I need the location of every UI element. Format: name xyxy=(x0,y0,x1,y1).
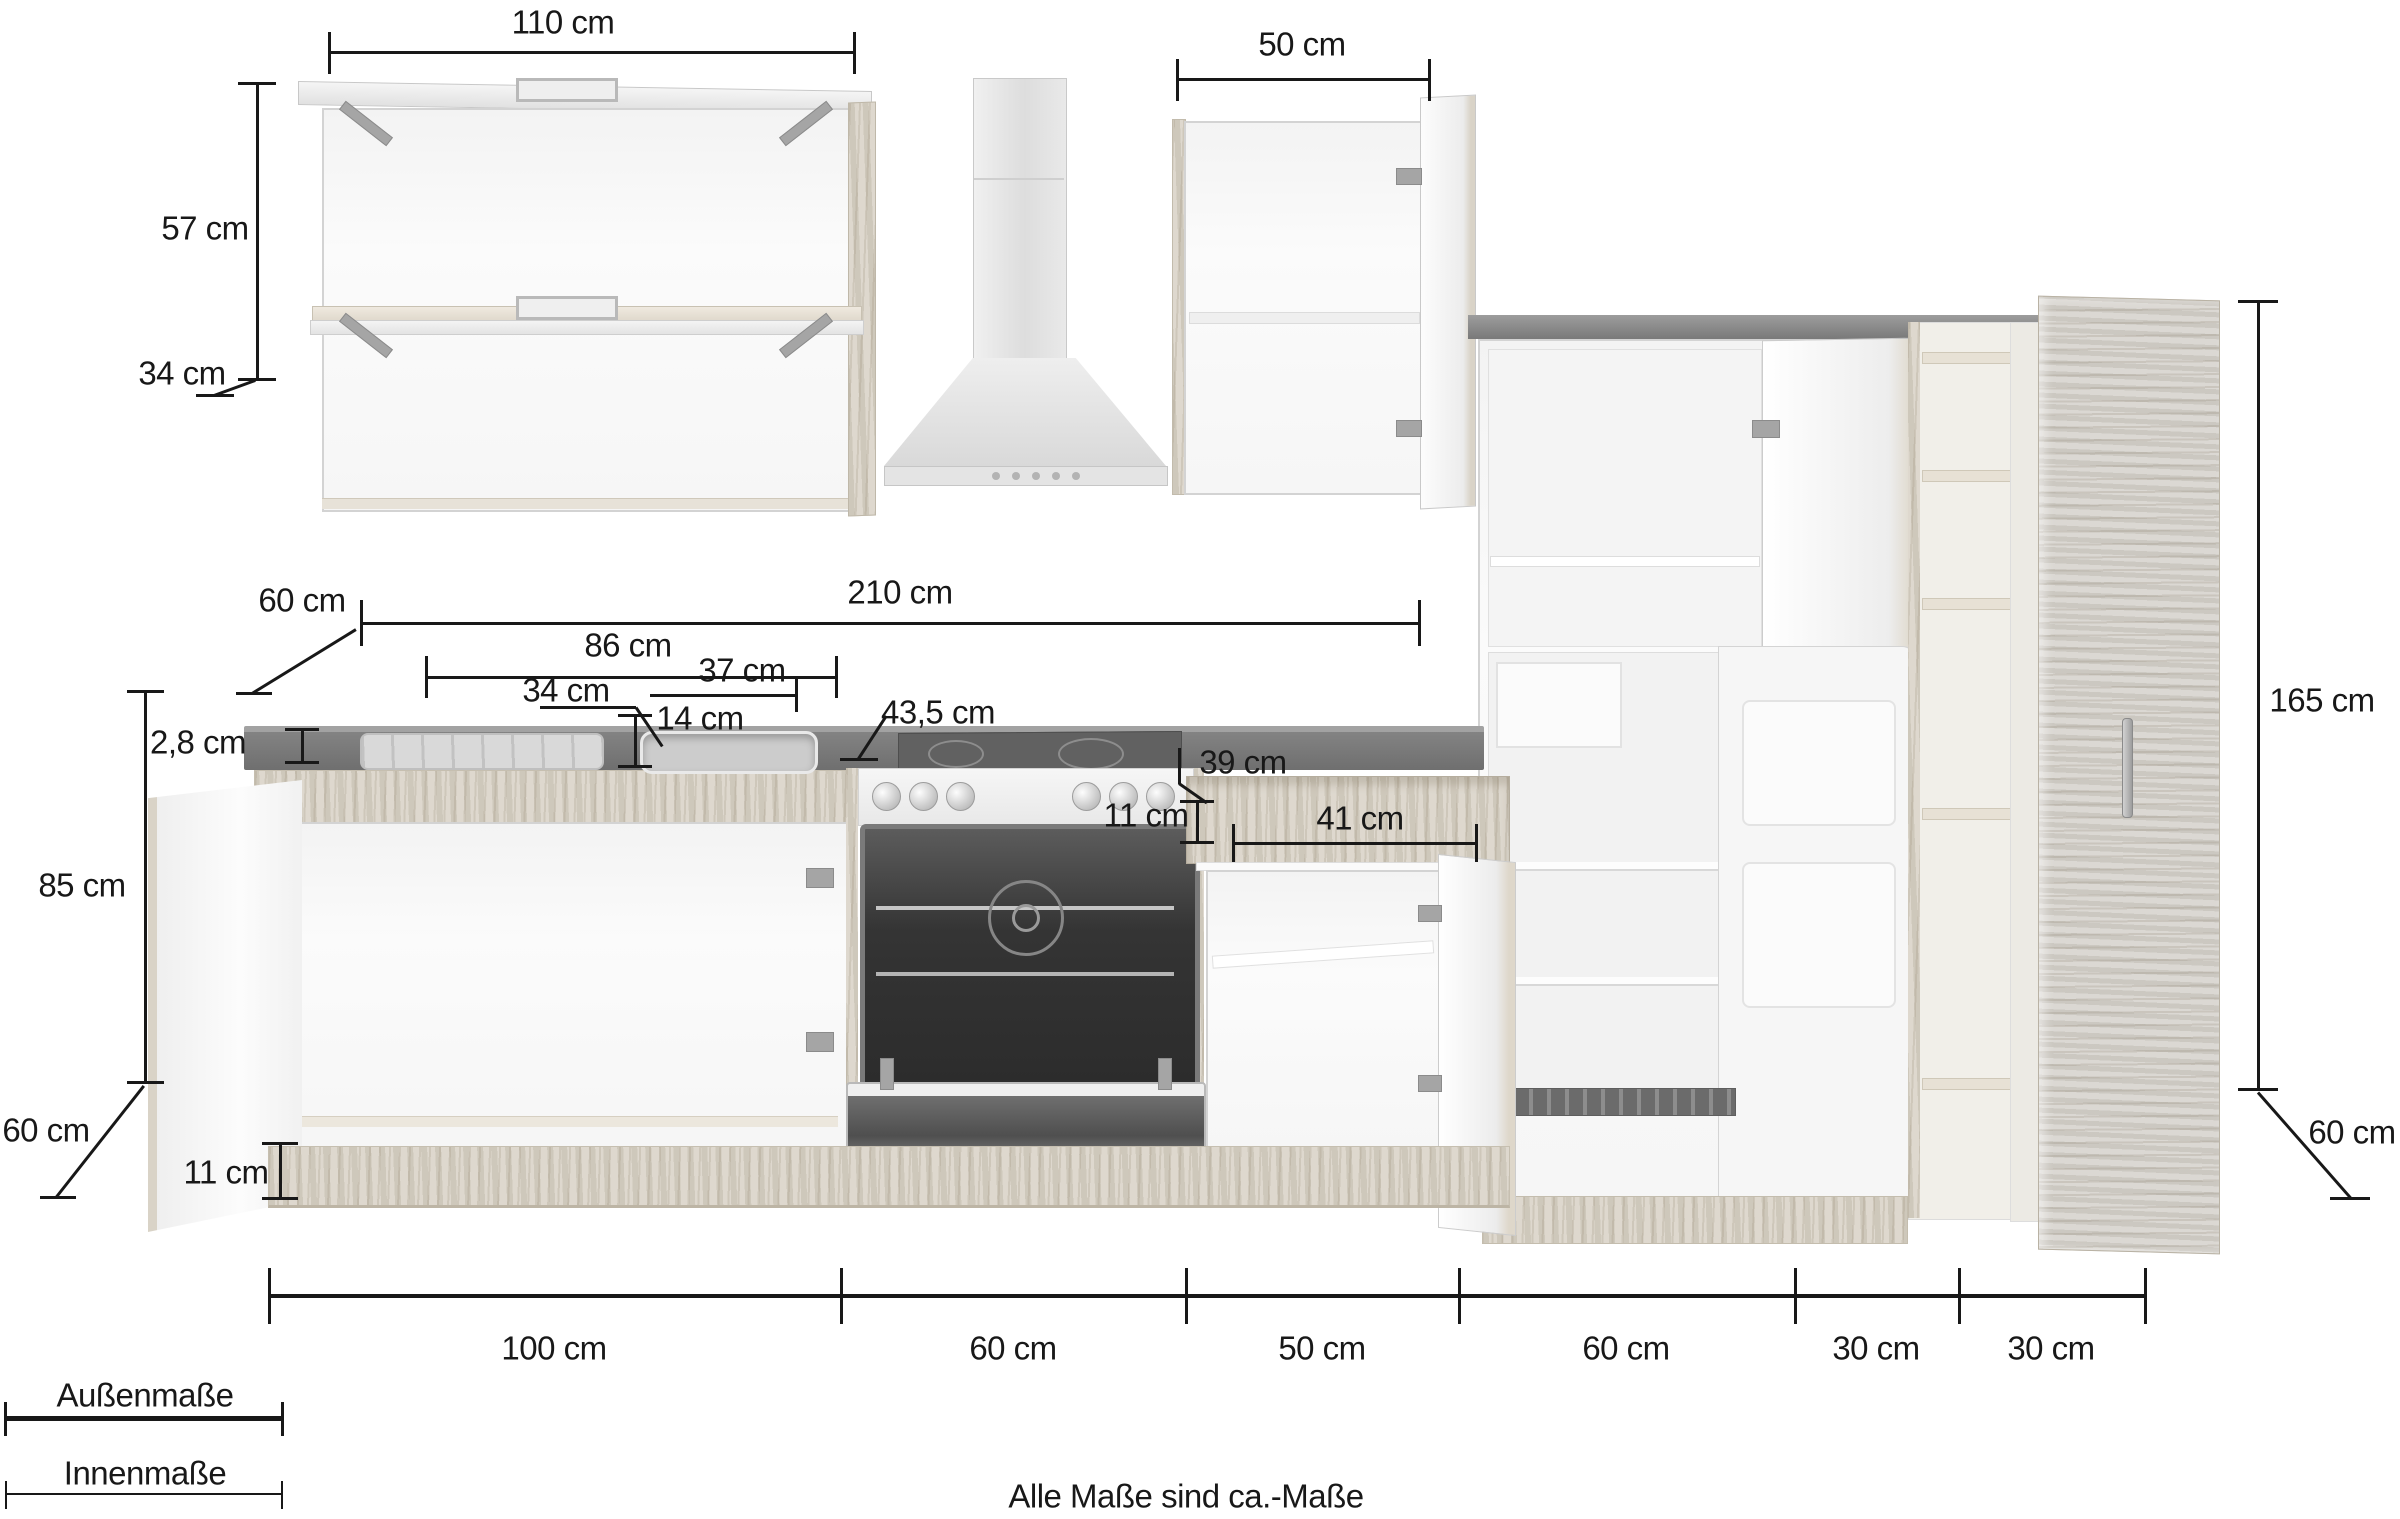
dim-line xyxy=(256,82,259,380)
tall-cabinet-upper-shelf xyxy=(1490,556,1760,567)
dim-wall-left-depth: 34 cm xyxy=(138,357,225,390)
dim-drawer-width: 41 cm xyxy=(1316,802,1403,835)
dim-leader xyxy=(251,628,356,694)
hob-burner xyxy=(928,740,984,768)
dim-tick xyxy=(835,656,838,698)
dim-bowl-depth: 14 cm xyxy=(656,702,743,735)
dim-tick xyxy=(1458,1268,1461,1324)
dim-tick xyxy=(1794,1268,1797,1324)
dim-line xyxy=(360,622,1421,625)
legend-outer-line xyxy=(4,1416,284,1421)
dim-line xyxy=(1196,800,1199,844)
kitchen-dimension-diagram: 110 cm 57 cm 34 cm 50 cm 210 cm 60 cm 86… xyxy=(0,0,2400,1519)
legend-tick xyxy=(5,1481,7,1509)
legend-inner-label: Innenmaße xyxy=(64,1457,226,1490)
dim-tick xyxy=(238,378,276,381)
legend-tick xyxy=(281,1402,284,1436)
oven-door-hinge xyxy=(1158,1058,1172,1090)
dim-hob-width: 43,5 cm xyxy=(881,696,995,729)
wall-cabinet-right-carcass xyxy=(1184,121,1426,495)
dim-tick xyxy=(360,600,363,646)
hinge xyxy=(806,1032,834,1052)
dim-wall-left-width: 110 cm xyxy=(512,6,615,39)
dim-tick xyxy=(238,82,276,85)
dim-line xyxy=(650,694,798,697)
dim-tick xyxy=(1958,1268,1961,1324)
oven-door-hinge xyxy=(880,1058,894,1090)
wall-cabinet-left-handle-lower xyxy=(516,296,618,320)
tall-wood-door-interior-sliver xyxy=(2010,322,2040,1222)
wall-cabinet-right-open-door xyxy=(1420,95,1476,510)
dim-line xyxy=(328,51,856,54)
dim-tick xyxy=(2144,1268,2147,1324)
hood-button xyxy=(1012,472,1020,480)
dim-tick xyxy=(425,656,428,698)
fridge-freezer-box xyxy=(1496,662,1622,748)
oven-knob xyxy=(1072,782,1101,811)
dim-tick xyxy=(236,692,272,695)
dim-line xyxy=(1176,78,1431,81)
hob-burner xyxy=(1058,738,1124,770)
dim-wall-left-height: 57 cm xyxy=(161,212,248,245)
oven-cavity xyxy=(860,824,1200,1090)
wall-cabinet-left-open-lid-lower xyxy=(310,320,864,335)
dim-tick xyxy=(618,714,652,717)
hinge xyxy=(1396,420,1422,437)
sink-cabinet-carcass xyxy=(268,822,848,1152)
worktop-front-edge xyxy=(254,770,848,826)
hinge xyxy=(806,868,834,888)
legend-tick xyxy=(4,1402,7,1436)
sink-bowl xyxy=(640,731,818,774)
dim-line xyxy=(301,728,304,764)
dim-tick xyxy=(40,1196,76,1199)
footnote: Alle Maße sind ca.-Maße xyxy=(1008,1480,1363,1513)
dim-tick xyxy=(618,765,652,768)
dim-niche-height: 11 cm xyxy=(1104,799,1189,832)
hood-canopy xyxy=(884,358,1166,466)
dim-niche-depth: 39 cm xyxy=(1199,746,1286,779)
dim-tick xyxy=(2238,300,2278,303)
dim-tick xyxy=(285,761,319,764)
dim-line xyxy=(634,714,637,768)
hinge xyxy=(1418,1075,1442,1092)
dim-tick xyxy=(262,1197,298,1200)
drawer-cabinet-carcass xyxy=(1206,870,1442,1158)
base-plinth xyxy=(268,1146,1510,1208)
hood-button xyxy=(1072,472,1080,480)
dim-tick xyxy=(127,690,164,693)
oven-knob xyxy=(946,782,975,811)
dim-tick xyxy=(1180,800,1214,803)
dim-base-height: 85 cm xyxy=(38,869,125,902)
sink-drainer xyxy=(360,733,604,770)
dim-base-depth: 60 cm xyxy=(2,1114,89,1147)
dim-tall-height: 165 cm xyxy=(2269,684,2374,717)
tall-cabinet-upper-interior xyxy=(1488,349,1762,647)
oven-fan-hub xyxy=(1012,904,1040,932)
legend-tick xyxy=(281,1481,283,1509)
sink-cabinet-bottom-board xyxy=(274,1116,838,1127)
dim-worktop-run: 210 cm xyxy=(847,576,952,609)
hinge xyxy=(1396,168,1422,185)
dim-bottom-30a: 30 cm xyxy=(1832,1332,1919,1365)
hinge xyxy=(1418,905,1442,922)
dim-tick xyxy=(840,1268,843,1324)
dim-leader xyxy=(540,706,636,709)
dim-tick xyxy=(1180,841,1214,844)
dim-tick xyxy=(1232,824,1235,862)
dim-tick xyxy=(2238,1088,2278,1091)
fridge-door-bin xyxy=(1742,700,1896,826)
dim-bottom-60b: 60 cm xyxy=(1582,1332,1669,1365)
dim-worktop-thickness: 2,8 cm xyxy=(150,726,246,759)
hood-button xyxy=(992,472,1000,480)
wall-cabinet-left-handle-top xyxy=(516,78,618,102)
dim-tick xyxy=(1428,59,1431,101)
hood-button xyxy=(1032,472,1040,480)
dim-bottom-30b: 30 cm xyxy=(2007,1332,2094,1365)
dim-tick xyxy=(1475,824,1478,862)
dim-bottom-100: 100 cm xyxy=(501,1332,606,1365)
dim-drainer-width: 34 cm xyxy=(522,674,609,707)
dim-bottom-50: 50 cm xyxy=(1278,1332,1365,1365)
oven-knob xyxy=(909,782,938,811)
dim-tick xyxy=(262,1142,298,1145)
fridge-door-bin xyxy=(1742,862,1896,1008)
hood-button xyxy=(1052,472,1060,480)
dim-worktop-depth: 60 cm xyxy=(258,584,345,617)
dim-line xyxy=(279,1142,282,1200)
pantry-side-strip xyxy=(1908,322,1920,1218)
dim-tick xyxy=(285,728,319,731)
dim-tick xyxy=(795,678,798,712)
dim-bowl-width: 37 cm xyxy=(698,654,785,687)
dim-tall-depth: 60 cm xyxy=(2308,1116,2395,1149)
dim-line-bottom xyxy=(268,1294,2147,1298)
dim-line xyxy=(144,690,147,1084)
dim-tick xyxy=(268,1268,271,1324)
wall-cabinet-right-shelf xyxy=(1189,312,1420,324)
dim-tick xyxy=(1176,59,1179,101)
dim-plinth-height: 11 cm xyxy=(184,1156,269,1189)
dim-tick xyxy=(840,758,878,761)
dim-bottom-60a: 60 cm xyxy=(969,1332,1056,1365)
dim-tick xyxy=(1185,1268,1188,1324)
dim-line xyxy=(1232,842,1478,845)
hood-chimney-seam xyxy=(974,178,1064,180)
dim-tick xyxy=(328,32,331,74)
tall-wood-door-handle xyxy=(2122,718,2133,818)
dim-tick xyxy=(127,1081,164,1084)
tall-unit-plinth xyxy=(1482,1196,1908,1244)
dim-wall-right-width: 50 cm xyxy=(1258,28,1345,61)
dim-sink-run: 86 cm xyxy=(584,629,671,662)
dim-tick xyxy=(2330,1197,2370,1200)
dim-tick xyxy=(1418,600,1421,646)
fridge-vent-grille xyxy=(1496,1088,1736,1116)
dim-tick xyxy=(853,32,856,74)
legend-outer-label: Außenmaße xyxy=(56,1379,233,1412)
oven-knob xyxy=(872,782,901,811)
wall-cabinet-left-bottom-board xyxy=(322,498,848,509)
hood-canopy-base xyxy=(884,466,1168,486)
oven-rack xyxy=(876,972,1174,976)
hinge xyxy=(1752,420,1780,438)
dim-tick xyxy=(1178,748,1181,784)
hood-chimney xyxy=(973,78,1067,364)
dim-line xyxy=(2257,300,2260,1091)
legend-inner-line xyxy=(5,1493,283,1495)
